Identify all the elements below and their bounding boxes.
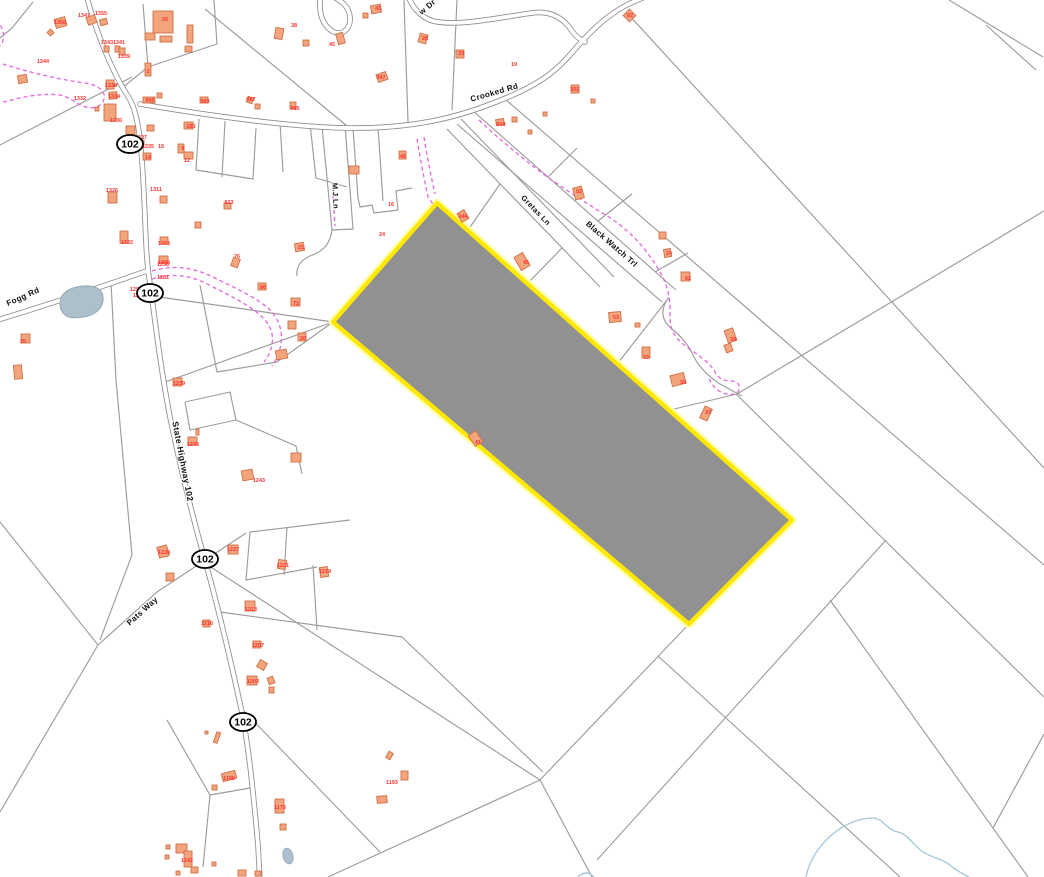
parcel-number-label: 1239: [173, 381, 185, 387]
building-footprint: [635, 323, 640, 327]
parcel-number-label: 1311: [150, 187, 162, 193]
parcel-number-label: 1334: [108, 94, 121, 100]
parcel-number-label: 23: [458, 51, 464, 57]
route-shield-number: 102: [196, 554, 214, 566]
parcel-number-label: 985: [290, 106, 299, 112]
parcel-number-label: 15: [158, 144, 164, 150]
building-footprint: [274, 27, 284, 39]
building-footprint: [205, 731, 208, 734]
building-footprint: [291, 453, 301, 462]
parcel-number-label: 52: [576, 189, 582, 195]
parcel-number-label: 552: [570, 87, 579, 93]
parcel-number-label: 1336: [110, 118, 122, 124]
parcel-number-label: 1227: [227, 547, 239, 553]
parcel-number-label: 24: [379, 232, 386, 238]
building-footprint: [104, 46, 109, 52]
parcel-number-label: 1355: [95, 11, 107, 17]
building-footprint: [157, 93, 162, 98]
building-footprint: [212, 862, 216, 866]
parcel-number-label: 41: [475, 440, 481, 446]
building-footprint: [99, 18, 107, 26]
parcel-number-label: 38: [291, 23, 297, 29]
route-shield: 102: [230, 713, 256, 731]
parcel-number-label: 1235: [187, 442, 199, 448]
parcel-number-label: 53: [613, 315, 619, 321]
parcel-number-label: 995: [145, 98, 154, 104]
route-shield: 102: [117, 135, 143, 153]
route-shield-number: 102: [234, 717, 252, 729]
parcel-number-label: 823: [224, 200, 233, 206]
parcel-number-label: 8: [181, 146, 184, 152]
parcel-number-label: 1203: [247, 679, 259, 685]
building-footprint: [176, 871, 180, 875]
route-shield: 102: [137, 284, 163, 302]
parcel-number-label: 24: [666, 251, 673, 257]
building-footprint: [269, 687, 274, 693]
parcel-number-label: 20: [300, 336, 306, 342]
building-footprint: [363, 13, 368, 18]
building-footprint: [187, 25, 193, 43]
building-footprint: [160, 196, 167, 203]
parcel-number-label: 1344: [37, 59, 50, 65]
parcel-number-label: 14: [145, 155, 152, 161]
parcel-number-label: 28: [422, 36, 428, 42]
parcel-number-label: 16: [388, 202, 394, 208]
building-footprint: [185, 46, 192, 52]
parcel-number-label: 82: [627, 13, 633, 19]
building-footprint: [160, 36, 172, 42]
parcel-number-label: 2: [146, 69, 149, 75]
parcel-number-label: 1326: [106, 188, 118, 194]
building-footprint: [280, 824, 286, 830]
building-footprint: [255, 104, 260, 109]
parcel-number-label: 987: [246, 97, 255, 103]
building-footprint: [591, 99, 595, 103]
building-footprint: [275, 349, 287, 360]
parcel-number-label: 918: [496, 122, 505, 128]
parcel-number-label: 1142: [181, 858, 193, 864]
map-container: 1344135613471355134313411339133813341332…: [0, 0, 1044, 877]
parcel-number-label: 983: [200, 99, 209, 105]
parcel-number-label: 76: [234, 254, 240, 260]
parcel-number-label: 283: [186, 124, 195, 130]
parcel-number-label: 33: [643, 355, 649, 361]
building-footprint: [255, 871, 261, 876]
parcel-number-label: 1339: [118, 54, 130, 60]
parcel-number-label: 1186: [223, 776, 235, 782]
parcel-number-label: 1213: [245, 607, 257, 613]
building-footprint: [196, 429, 199, 435]
parcel-number-label: 45: [523, 260, 529, 266]
parcel-number-label: 1207: [252, 643, 264, 649]
building-footprint: [145, 33, 155, 40]
building-footprint: [147, 125, 154, 131]
building-footprint: [659, 232, 666, 239]
building-footprint: [212, 785, 217, 790]
parcel-number-label: 46: [400, 154, 406, 160]
parcel-number-label: 1216: [201, 621, 213, 627]
parcel-number-label: 37: [705, 410, 711, 416]
parcel-number-label: 35: [680, 380, 686, 386]
parcel-number-label: 21: [298, 245, 304, 251]
parcel-number-label: 1303: [158, 241, 170, 247]
parcel-number-label: 1173: [274, 805, 286, 811]
parcel-number-label: 25: [20, 339, 26, 345]
parcel-number-label: 1341: [113, 40, 125, 46]
building-footprint: [166, 573, 174, 581]
building-footprint: [191, 867, 198, 873]
route-shield-number: 102: [141, 288, 159, 300]
parcel-number-label: 1193: [386, 780, 398, 786]
parcel-number-label: 347: [376, 75, 385, 81]
parcel-number-label: 39: [730, 337, 736, 343]
parcel-number-label: 1228: [158, 550, 170, 556]
parcel-number-label: 1338: [105, 83, 117, 89]
parcel-number-label: 1332: [74, 96, 86, 102]
building-footprint: [512, 117, 517, 122]
parcel-number-label: 1343: [101, 40, 113, 46]
building-footprint: [401, 771, 408, 780]
parcel-number-label: 1296: [157, 262, 169, 268]
building-footprint: [349, 166, 359, 174]
parcel-number-label: 1356: [54, 20, 66, 26]
building-footprint: [377, 796, 388, 804]
parcel-number-label: 55: [162, 17, 168, 23]
building-footprint: [528, 130, 532, 134]
building-footprint: [165, 855, 169, 859]
building-footprint: [13, 365, 22, 380]
parcel-number-label: 45: [329, 42, 335, 48]
building-footprint: [238, 870, 246, 876]
route-shield-number: 102: [121, 139, 139, 151]
route-shield: 102: [192, 550, 218, 568]
map-viewport[interactable]: 1344135613471355134313411339133813341332…: [0, 0, 1044, 877]
building-footprint: [303, 40, 309, 46]
building-footprint: [288, 321, 296, 329]
building-footprint: [17, 74, 27, 83]
building-footprint: [543, 112, 547, 116]
parcel-number-label: 72: [293, 301, 299, 307]
parcel-number-label: 12: [184, 158, 190, 164]
parcel-number-label: 1243: [253, 478, 265, 484]
building-footprint: [195, 222, 201, 228]
parcel-number-label: 19: [511, 62, 517, 68]
road-name-label: M.J Ln: [330, 183, 340, 210]
parcel-number-label: 1281: [157, 275, 169, 281]
parcel-number-label: 1221: [277, 563, 289, 569]
parcel-number-label: 86: [260, 285, 266, 291]
building-footprint: [95, 107, 99, 111]
parcel-number-label: 246: [458, 214, 467, 220]
parcel-number-label: 43: [375, 6, 381, 12]
parcel-number-label: 1322: [121, 240, 133, 246]
parcel-number-label: 62: [685, 276, 691, 282]
parcel-number-label: 1347: [78, 13, 90, 19]
building-footprint: [166, 845, 170, 849]
parcel-number-label: 1219: [319, 569, 331, 575]
